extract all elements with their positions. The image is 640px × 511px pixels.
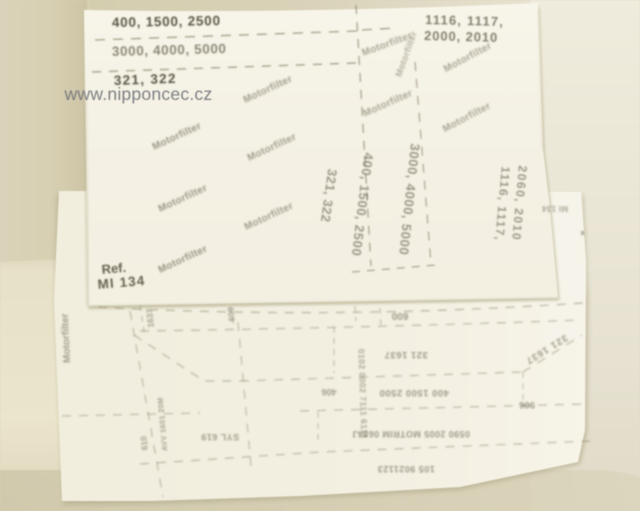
svg-text:1116, 1117,: 1116, 1117, bbox=[425, 12, 504, 29]
svg-text:www.nipponcec.cz: www.nipponcec.cz bbox=[64, 84, 213, 104]
svg-text:321 1637: 321 1637 bbox=[384, 349, 428, 360]
svg-text:406: 406 bbox=[321, 387, 336, 397]
svg-text:MI 134: MI 134 bbox=[542, 204, 569, 213]
svg-text:400 1500 2500: 400 1500 2500 bbox=[379, 387, 449, 398]
svg-text:906: 906 bbox=[519, 399, 535, 410]
svg-text:1637: 1637 bbox=[144, 308, 156, 328]
svg-text:SYL 619: SYL 619 bbox=[201, 432, 239, 442]
svg-text:600: 600 bbox=[391, 310, 408, 321]
svg-text:105 9021123: 105 9021123 bbox=[377, 464, 435, 474]
svg-text:610: 610 bbox=[138, 435, 149, 450]
svg-text:400, 1500, 2500: 400, 1500, 2500 bbox=[112, 13, 221, 30]
svg-text:600: 600 bbox=[225, 306, 236, 321]
svg-text:3000, 4000, 5000: 3000, 4000, 5000 bbox=[112, 41, 227, 59]
